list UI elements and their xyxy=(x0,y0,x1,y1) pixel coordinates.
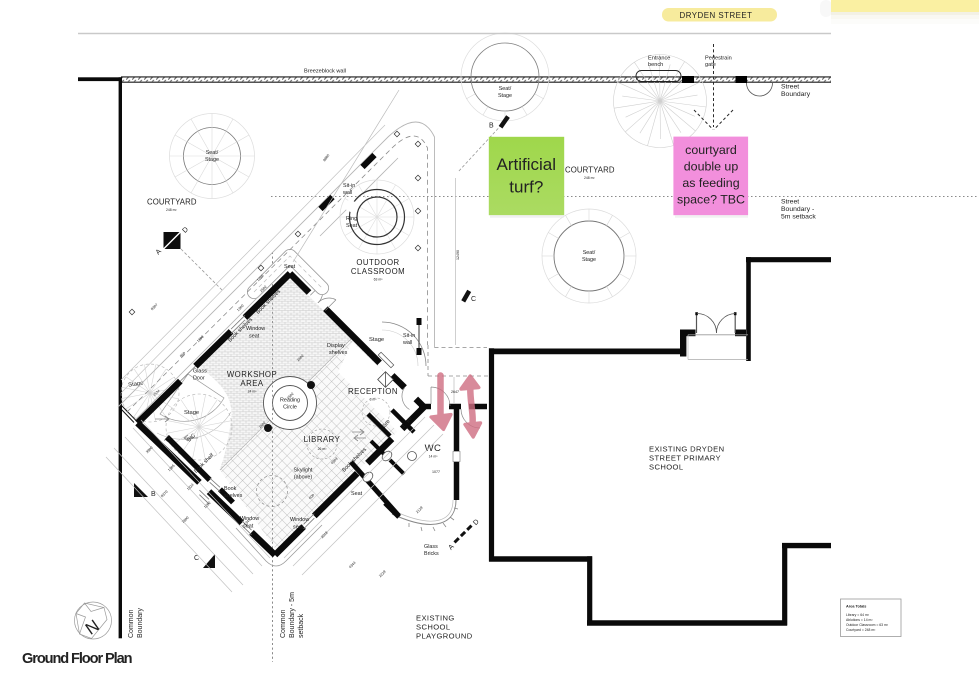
svg-text:Glass: Glass xyxy=(193,369,207,375)
svg-text:Courtyard = 248 m²: Courtyard = 248 m² xyxy=(846,628,876,632)
svg-text:shelves: shelves xyxy=(224,493,243,499)
svg-text:Breezeblock wall: Breezeblock wall xyxy=(304,69,346,75)
svg-text:double up: double up xyxy=(684,160,739,174)
svg-text:Seat/: Seat/ xyxy=(583,250,596,256)
svg-text:12490: 12490 xyxy=(456,250,460,260)
svg-text:Ring: Ring xyxy=(346,216,357,222)
svg-text:as feeding: as feeding xyxy=(682,176,739,190)
svg-text:AREA: AREA xyxy=(240,379,264,388)
svg-text:Glass: Glass xyxy=(424,544,438,550)
svg-text:Boundary - 5m: Boundary - 5m xyxy=(289,592,296,638)
svg-text:Skylight: Skylight xyxy=(294,468,313,474)
svg-text:SCHOOL: SCHOOL xyxy=(649,463,683,472)
svg-text:Artificial: Artificial xyxy=(497,155,557,174)
svg-text:Boundary -: Boundary - xyxy=(781,206,814,213)
svg-text:WORKSHOP: WORKSHOP xyxy=(227,370,277,379)
svg-text:63 m²: 63 m² xyxy=(374,278,384,282)
svg-text:STREET PRIMARY: STREET PRIMARY xyxy=(649,454,721,463)
svg-text:14 m²: 14 m² xyxy=(429,455,439,459)
svg-text:Boundary: Boundary xyxy=(137,608,144,638)
svg-text:CLASSROOM: CLASSROOM xyxy=(351,267,405,276)
svg-text:Boundary: Boundary xyxy=(781,91,811,98)
svg-text:COURTYARD: COURTYARD xyxy=(147,198,197,207)
svg-text:Stage: Stage xyxy=(184,410,199,416)
svg-text:Area Totals: Area Totals xyxy=(846,605,866,609)
svg-text:Stage: Stage xyxy=(369,337,384,343)
svg-text:Stage: Stage xyxy=(498,93,512,99)
svg-text:EXISTING: EXISTING xyxy=(416,614,455,623)
svg-text:space? TBC: space? TBC xyxy=(677,193,745,207)
svg-text:Entrance: Entrance xyxy=(648,56,670,62)
svg-text:SCHOOL: SCHOOL xyxy=(416,623,450,632)
svg-text:8 m²: 8 m² xyxy=(370,398,378,402)
svg-text:Seat/: Seat/ xyxy=(206,150,219,156)
svg-text:wall: wall xyxy=(342,190,352,196)
svg-text:COURTYARD: COURTYARD xyxy=(565,166,615,175)
svg-text:Outdoor Classroom = 63 m²: Outdoor Classroom = 63 m² xyxy=(846,623,889,627)
svg-text:Book: Book xyxy=(224,486,237,492)
svg-text:Window: Window xyxy=(246,326,265,332)
svg-text:Door: Door xyxy=(193,376,205,382)
svg-text:Bricks: Bricks xyxy=(424,551,439,557)
svg-text:Circle: Circle xyxy=(283,405,297,411)
svg-text:WC: WC xyxy=(425,443,442,454)
svg-text:C: C xyxy=(471,296,476,303)
svg-text:setback: setback xyxy=(298,613,305,638)
svg-text:Ablutions = 14 m²: Ablutions = 14 m² xyxy=(846,618,873,622)
svg-text:Ground Floor Plan: Ground Floor Plan xyxy=(22,651,133,667)
svg-text:PLAYGROUND: PLAYGROUND xyxy=(416,632,473,641)
svg-text:turf?: turf? xyxy=(509,178,543,197)
svg-text:RECEPTION: RECEPTION xyxy=(348,387,398,396)
svg-text:5m setback: 5m setback xyxy=(781,214,816,221)
svg-text:wall: wall xyxy=(402,340,412,346)
svg-text:Seat: Seat xyxy=(346,223,358,229)
svg-text:Stage: Stage xyxy=(582,257,596,263)
svg-text:1077: 1077 xyxy=(432,470,440,474)
svg-text:gate: gate xyxy=(705,62,716,68)
svg-text:248 m²: 248 m² xyxy=(584,176,595,180)
svg-text:OUTDOOR: OUTDOOR xyxy=(356,258,399,267)
svg-text:Sit-in: Sit-in xyxy=(403,333,415,339)
svg-text:shelves: shelves xyxy=(329,350,348,356)
svg-text:Street: Street xyxy=(781,84,799,91)
svg-text:26 m²: 26 m² xyxy=(318,447,328,451)
svg-text:DRYDEN STREET: DRYDEN STREET xyxy=(680,11,753,20)
svg-text:seat: seat xyxy=(249,334,260,340)
svg-text:2647: 2647 xyxy=(451,390,459,394)
svg-text:Seat/: Seat/ xyxy=(499,86,512,92)
svg-text:bench: bench xyxy=(648,62,663,68)
svg-text:Pedestrain: Pedestrain xyxy=(705,56,732,62)
svg-text:courtyard: courtyard xyxy=(685,143,737,157)
svg-text:Seat: Seat xyxy=(351,491,363,497)
svg-text:B: B xyxy=(489,123,494,130)
svg-text:seat: seat xyxy=(293,525,304,531)
svg-text:(above): (above) xyxy=(294,475,312,481)
svg-text:Library = 64 m²: Library = 64 m² xyxy=(846,613,870,617)
svg-text:EXISTING DRYDEN: EXISTING DRYDEN xyxy=(649,445,724,454)
svg-text:Stage: Stage xyxy=(205,157,219,163)
svg-text:Common: Common xyxy=(280,609,287,638)
svg-text:Common: Common xyxy=(128,609,135,638)
svg-text:24 m²: 24 m² xyxy=(248,390,258,394)
svg-text:Window: Window xyxy=(290,517,309,523)
svg-text:Sit-in: Sit-in xyxy=(343,183,355,189)
svg-text:248 m²: 248 m² xyxy=(166,208,177,212)
svg-text:Display: Display xyxy=(327,343,345,349)
svg-text:Seat: Seat xyxy=(284,264,296,270)
svg-text:Street: Street xyxy=(781,199,799,206)
